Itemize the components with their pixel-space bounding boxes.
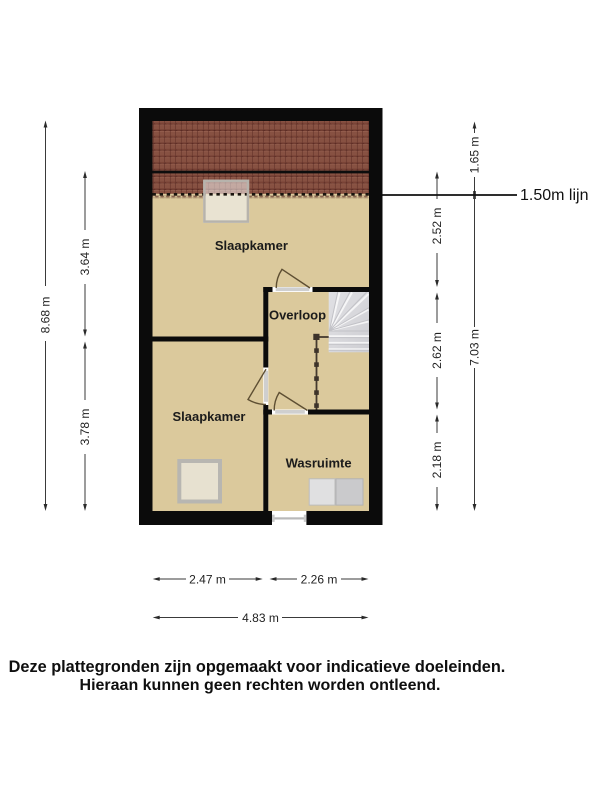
svg-text:Slaapkamer: Slaapkamer — [215, 238, 288, 253]
svg-text:2.62 m: 2.62 m — [430, 332, 444, 369]
svg-text:4.83 m: 4.83 m — [242, 611, 279, 625]
svg-text:3.78 m: 3.78 m — [78, 409, 92, 446]
svg-text:8.68 m: 8.68 m — [38, 297, 52, 334]
svg-text:7.03 m: 7.03 m — [468, 329, 482, 366]
svg-text:Overloop: Overloop — [269, 308, 326, 323]
svg-text:1.50m lijn: 1.50m lijn — [520, 187, 588, 204]
svg-text:Wasruimte: Wasruimte — [286, 455, 352, 470]
svg-text:2.18 m: 2.18 m — [430, 442, 444, 479]
svg-text:Deze plattegronden zijn opgema: Deze plattegronden zijn opgemaakt voor i… — [9, 658, 506, 676]
svg-text:Hieraan kunnen geen rechten wo: Hieraan kunnen geen rechten worden ontle… — [80, 677, 441, 694]
svg-text:2.26 m: 2.26 m — [301, 573, 338, 587]
svg-text:Slaapkamer: Slaapkamer — [173, 409, 246, 424]
svg-text:2.52 m: 2.52 m — [430, 208, 444, 245]
svg-text:3.64 m: 3.64 m — [78, 239, 92, 276]
svg-text:1.65 m: 1.65 m — [468, 137, 482, 174]
svg-text:2.47 m: 2.47 m — [189, 573, 226, 587]
